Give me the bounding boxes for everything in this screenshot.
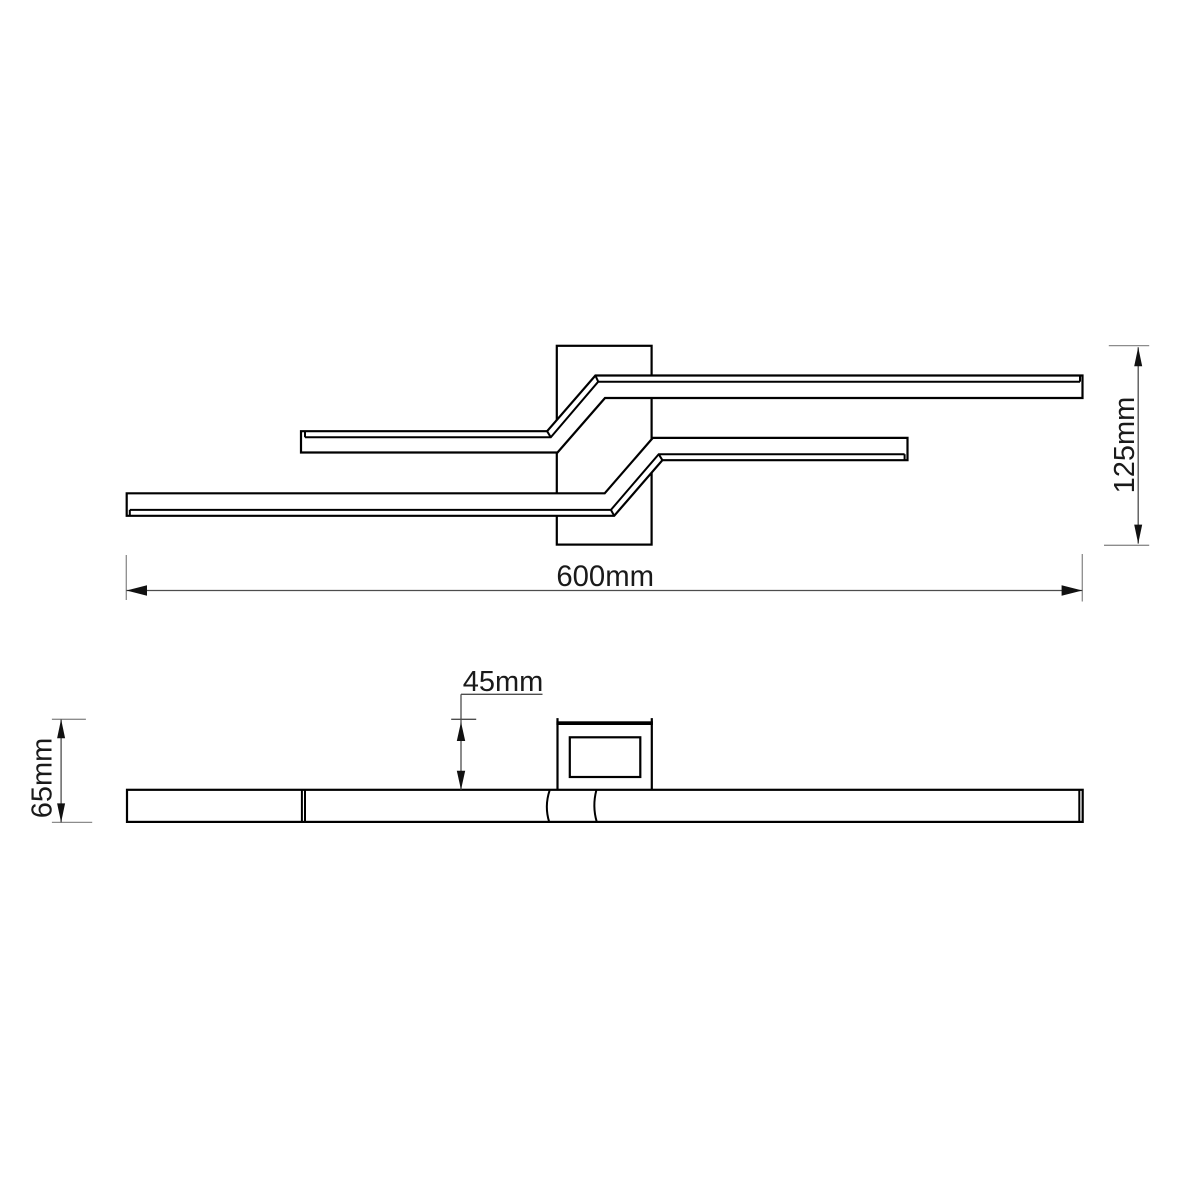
svg-text:600mm: 600mm bbox=[556, 560, 654, 593]
svg-text:65mm: 65mm bbox=[27, 738, 59, 819]
svg-text:45mm: 45mm bbox=[463, 666, 544, 698]
svg-text:125mm: 125mm bbox=[1109, 397, 1141, 494]
